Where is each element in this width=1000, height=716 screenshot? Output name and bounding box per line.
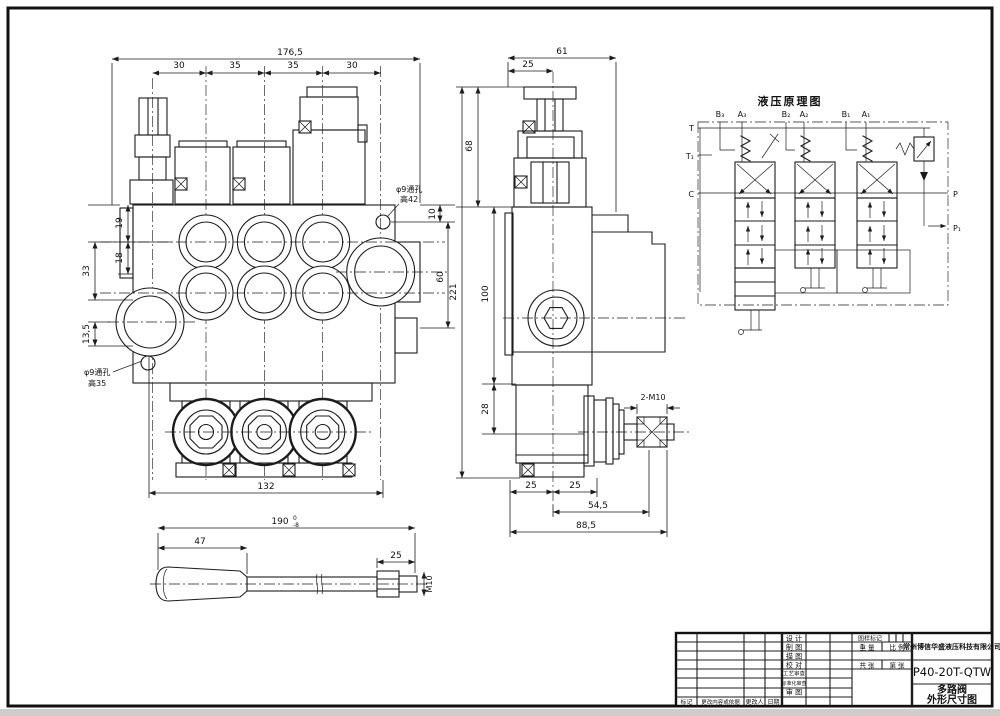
dim-side-54-5: 54,5 xyxy=(588,501,608,511)
dim-front-left-13-5: 13,5 xyxy=(82,324,92,344)
tb-rev-content: 更改内容或依据 xyxy=(701,698,740,706)
dim-side-28: 28 xyxy=(481,403,491,415)
port-label-p1: P₁ xyxy=(953,224,961,233)
port-label-t: T xyxy=(688,124,694,133)
dim-front-seg3: 35 xyxy=(287,61,298,71)
dim-lever-25: 25 xyxy=(390,551,401,561)
dim-side-68: 68 xyxy=(465,140,475,152)
port-label-b2: B₂ xyxy=(782,110,791,119)
tb-rev-mark: 标记 xyxy=(680,698,692,706)
port-a1 xyxy=(296,215,350,269)
dim-front-seg1: 30 xyxy=(173,61,185,71)
tb-stamp-label: 图样标记 xyxy=(858,635,882,643)
tb-sheet-title: 外形尺寸图 xyxy=(926,693,977,706)
title-block: 设 计 制 图 描 图 校 对 工艺审查 标准化审查 审 图 标记 更改内容或依… xyxy=(676,633,1000,706)
dim-side-61: 61 xyxy=(556,47,567,57)
tb-row-review: 审 图 xyxy=(786,688,802,697)
dim-side-88-5: 88,5 xyxy=(576,521,596,531)
port-label-t1: T₁ xyxy=(685,152,694,161)
dim-front-bottom-132: 132 xyxy=(257,482,274,492)
port-label-b3: B₃ xyxy=(716,110,725,119)
engineering-drawing: 176,5 30 35 35 30 xyxy=(0,0,1000,716)
port-b2 xyxy=(237,266,291,320)
hole-top-height: 高42 xyxy=(400,194,418,204)
port-a2 xyxy=(237,215,291,269)
dim-front-overall: 176,5 xyxy=(277,48,303,58)
dim-front-right-60: 60 xyxy=(436,271,446,283)
dim-side-foot25l: 25 xyxy=(525,481,536,491)
port-label-c: C xyxy=(688,190,694,199)
hole-top-label: φ9通孔 xyxy=(396,184,422,194)
tb-rev-person: 更改人 xyxy=(745,698,763,706)
hole-bottom-label: φ9通孔 xyxy=(84,367,110,377)
port-label-a3: A₃ xyxy=(738,110,747,119)
dim-front-right-10: 10 xyxy=(428,208,438,220)
dim-front-left-18: 18 xyxy=(115,252,125,264)
dim-side-221: 221 xyxy=(449,283,459,300)
scan-edge xyxy=(0,709,1000,716)
tb-sheetno-label: 第 张 xyxy=(889,661,905,670)
tb-row-draw: 制 图 xyxy=(786,643,802,652)
tb-model: P40-20T-QTW xyxy=(913,665,991,679)
port-label-a1: A₁ xyxy=(862,110,871,119)
port-b1 xyxy=(296,266,350,320)
dim-front-seg4: 30 xyxy=(346,61,358,71)
tb-rev-date: 日期 xyxy=(767,698,779,706)
tb-sheets-label: 共 张 xyxy=(859,661,875,670)
dim-lever-m10: M10 xyxy=(425,575,434,592)
dim-side-foot25r: 25 xyxy=(569,481,580,491)
tb-row-design: 设 计 xyxy=(786,634,802,643)
port-label-b1: B₁ xyxy=(842,110,851,119)
tb-row-trace: 描 图 xyxy=(786,652,802,661)
tb-row-process: 工艺审查 xyxy=(783,670,806,678)
tb-weight-label: 重 量 xyxy=(859,644,875,652)
dim-side-100: 100 xyxy=(481,285,491,302)
dim-front-seg2: 35 xyxy=(229,61,240,71)
tb-company: 常州博信华盛液压科技有限公司 xyxy=(903,642,1000,651)
dim-lever-tol-lower: -8 xyxy=(293,522,299,529)
port-label-p: P xyxy=(953,190,958,199)
tb-row-standard: 标准化审查 xyxy=(781,680,806,687)
dim-pivot-2m10: 2-M10 xyxy=(640,393,665,402)
port-label-a2: A₂ xyxy=(800,110,809,119)
dim-lever-tol-upper: 0 xyxy=(293,515,297,522)
hole-bottom-height: 高35 xyxy=(88,378,106,388)
dim-lever-47: 47 xyxy=(194,537,205,547)
tb-row-check: 校 对 xyxy=(786,661,802,670)
dim-lever-190: 190 xyxy=(271,517,288,527)
dim-front-left-33: 33 xyxy=(82,265,92,276)
schematic-title: 液压原理图 xyxy=(758,94,823,108)
dim-front-left-19: 19 xyxy=(115,217,125,229)
dim-side-25top: 25 xyxy=(522,60,533,70)
